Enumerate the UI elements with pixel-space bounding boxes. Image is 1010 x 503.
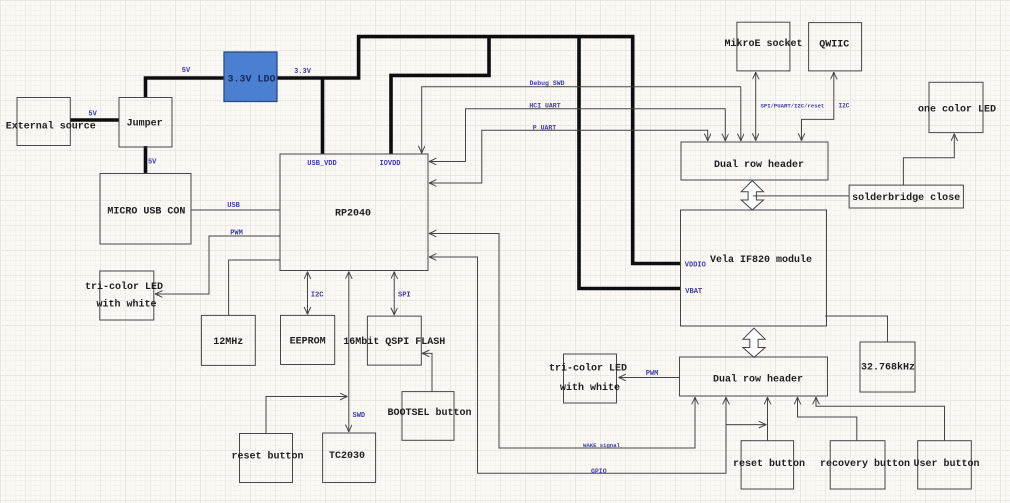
svg-text:PWM: PWM (646, 370, 659, 378)
svg-text:recovery button: recovery button (820, 458, 910, 470)
svg-text:TC2030: TC2030 (329, 451, 365, 462)
svg-text:5V: 5V (88, 111, 97, 119)
svg-text:16Mbit QSPI FLASH: 16Mbit QSPI FLASH (343, 336, 445, 348)
svg-text:P UART: P UART (533, 124, 557, 131)
svg-text:Jumper: Jumper (127, 119, 163, 130)
svg-text:EEPROM: EEPROM (290, 337, 326, 348)
svg-text:QWIIC: QWIIC (819, 40, 849, 51)
svg-text:one color LED: one color LED (918, 104, 996, 116)
svg-text:5V: 5V (148, 158, 157, 166)
svg-text:12MHz: 12MHz (213, 337, 243, 348)
svg-text:USB: USB (227, 202, 240, 210)
svg-text:SPI: SPI (398, 292, 411, 300)
svg-text:I2C: I2C (839, 102, 850, 109)
svg-text:User button: User button (913, 458, 979, 470)
svg-text:HCI UART: HCI UART (529, 103, 560, 110)
svg-text:External source: External source (6, 121, 96, 133)
svg-text:VDDIO: VDDIO (685, 262, 706, 270)
svg-text:32.768kHz: 32.768kHz (861, 362, 915, 374)
svg-text:VBAT: VBAT (685, 288, 702, 296)
svg-text:SWD: SWD (353, 412, 366, 420)
svg-text:Dual row header: Dual row header (714, 159, 804, 171)
svg-text:3.3V: 3.3V (294, 68, 312, 76)
svg-text:5V: 5V (182, 67, 191, 75)
svg-text:reset button: reset button (733, 458, 805, 470)
svg-text:BOOTSEL button: BOOTSEL button (387, 407, 471, 419)
svg-text:WAKE signal: WAKE signal (583, 442, 621, 449)
svg-text:reset button: reset button (231, 451, 303, 463)
svg-text:PWM: PWM (230, 230, 243, 238)
svg-text:Debug SWD: Debug SWD (529, 80, 564, 87)
svg-text:RP2040: RP2040 (335, 209, 371, 220)
svg-text:USB_VDD: USB_VDD (307, 160, 336, 168)
svg-text:tri-color LED: tri-color LED (85, 281, 163, 293)
svg-text:Dual row header: Dual row header (713, 374, 803, 386)
svg-text:I2C: I2C (311, 292, 324, 300)
svg-text:Vela IF820 module: Vela IF820 module (710, 254, 812, 266)
svg-text:MikroE socket: MikroE socket (724, 38, 802, 50)
svg-text:solderbridge close: solderbridge close (852, 192, 960, 204)
svg-text:MICRO USB CON: MICRO USB CON (107, 206, 185, 217)
svg-text:SPI/PUART/I2C/reset: SPI/PUART/I2C/reset (761, 102, 825, 109)
svg-text:tri-color LED: tri-color LED (549, 362, 627, 374)
svg-text:3.3V LDO: 3.3V LDO (227, 74, 275, 85)
svg-text:IOVDD: IOVDD (379, 160, 400, 168)
svg-text:with white: with white (96, 299, 156, 311)
svg-text:with white: with white (560, 382, 620, 394)
svg-text:GPIO: GPIO (591, 468, 607, 475)
